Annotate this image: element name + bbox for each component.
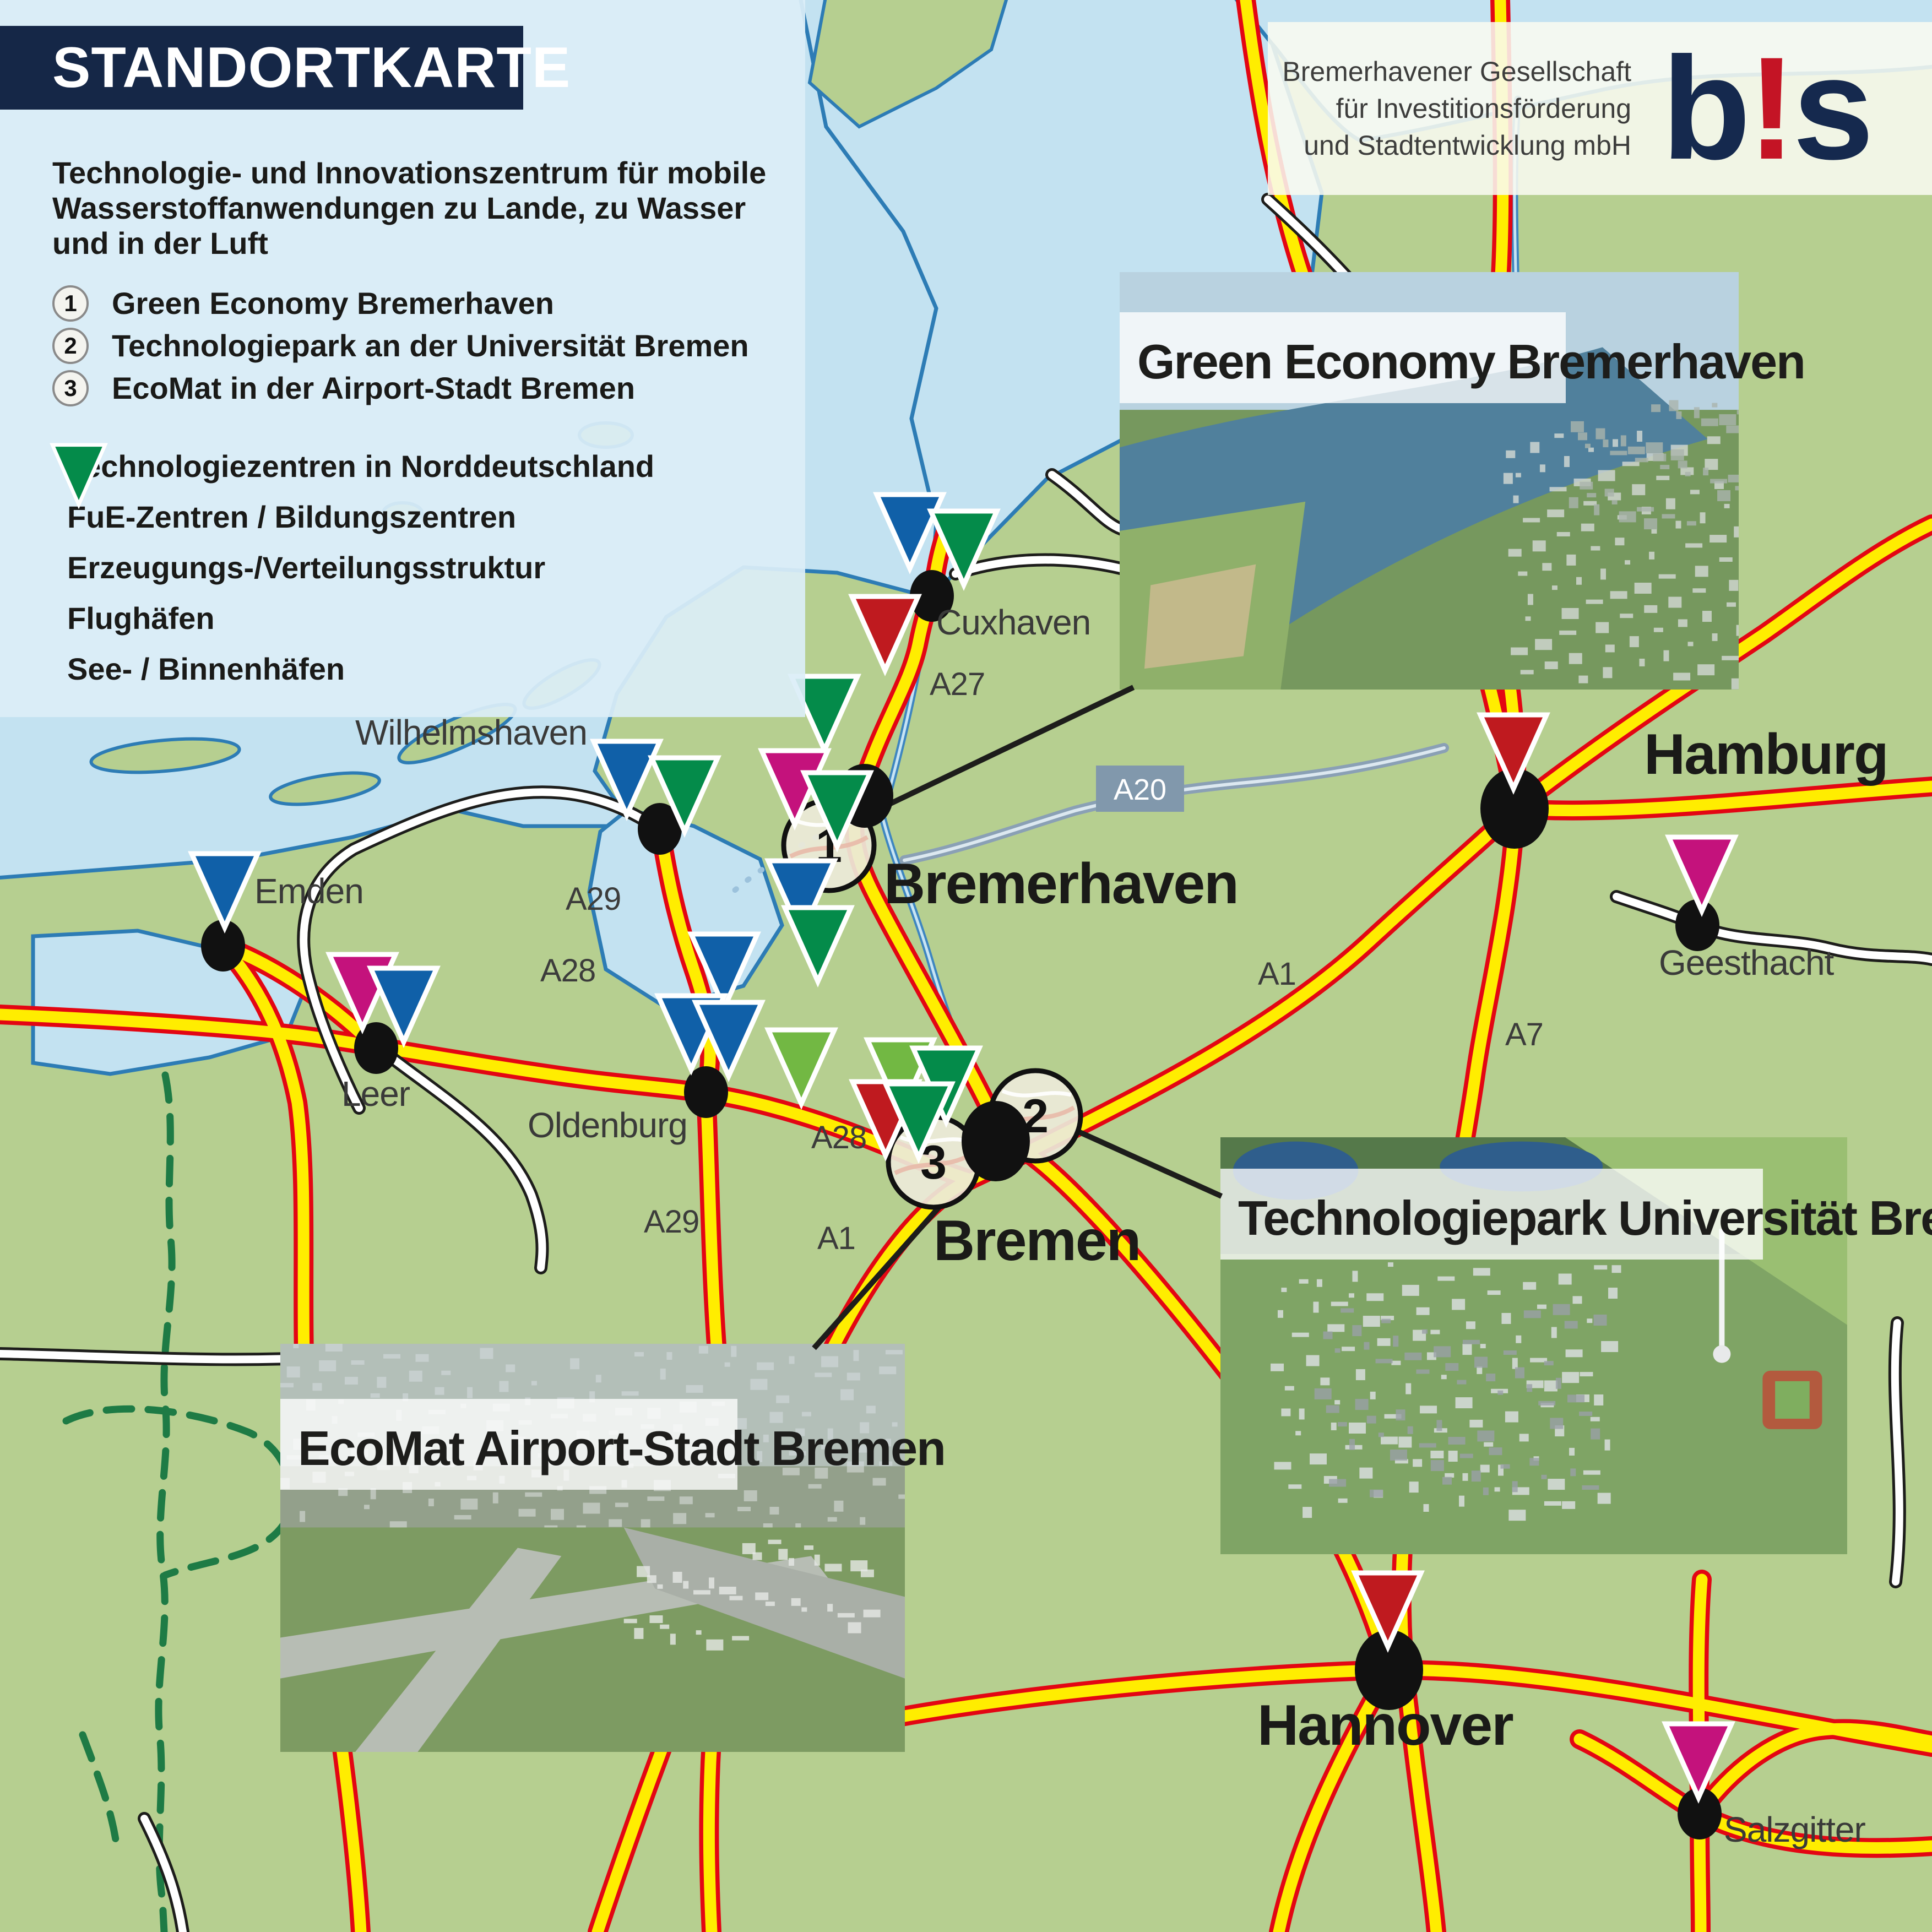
photo-inset-p1: Green Economy Bremerhaven xyxy=(1120,272,1805,690)
legend-key-label: FuE-Zentren / Bildungszentren xyxy=(48,499,516,535)
company-name-line: für Investitionsförderung xyxy=(1268,90,1631,127)
legend-panel: STANDORTKARTE Technologie- und Innovatio… xyxy=(0,0,805,717)
photo-inset-p2: Technologiepark Universität Bremen xyxy=(1220,1137,1932,1554)
numbered-site-item: 1Green Economy Bremerhaven xyxy=(52,282,749,324)
road-label-text: A29 xyxy=(644,1204,699,1240)
city-label-emden: Emden xyxy=(254,871,363,911)
legend-key-item: See- / Binnenhäfen xyxy=(48,643,654,694)
company-name-line: Bremerhavener Gesellschaft xyxy=(1268,53,1631,90)
road-label-text: A29 xyxy=(566,881,621,917)
photo-label: Green Economy Bremerhaven xyxy=(1137,334,1805,389)
site-name-label: Technologiepark an der Universität Breme… xyxy=(89,328,749,363)
city-label-wilhelmshaven: Wilhelmshaven xyxy=(355,713,587,752)
photo-label: EcoMat Airport-Stadt Bremen xyxy=(298,1421,945,1475)
legend-key-item: FuE-Zentren / Bildungszentren xyxy=(48,491,654,542)
page-title: STANDORTKARTE xyxy=(0,35,571,101)
city-label-geesthacht: Geesthacht xyxy=(1659,943,1835,983)
city-label-cuxhaven: Cuxhaven xyxy=(936,603,1090,642)
legend-key-item: Technologiezentren in Norddeutschland xyxy=(48,441,654,491)
city-label-oldenburg: Oldenburg xyxy=(528,1105,687,1145)
legend-key-label: Technologiezentren in Norddeutschland xyxy=(48,448,654,484)
photo-inset-p3: EcoMat Airport-Stadt Bremen xyxy=(280,1344,945,1752)
hafen-marker[interactable] xyxy=(785,908,851,981)
road-label-text: A27 xyxy=(930,666,985,702)
numbered-site-list: 1Green Economy Bremerhaven2Technologiepa… xyxy=(52,282,749,409)
road-label-text: A28 xyxy=(540,953,595,989)
photo-connector-line xyxy=(1075,1130,1222,1196)
site-number-badge: 3 xyxy=(52,370,89,406)
description-line: Technologie- und Innovationszentrum für … xyxy=(52,155,768,191)
numbered-site-item: 2Technologiepark an der Universität Brem… xyxy=(52,324,749,367)
site-name-label: EcoMat in der Airport-Stadt Bremen xyxy=(89,370,635,406)
photo-label: Technologiepark Universität Bremen xyxy=(1238,1191,1932,1245)
bis-logo: b!s xyxy=(1631,40,1871,177)
bis-logo-b: b xyxy=(1662,27,1748,190)
erz-marker[interactable] xyxy=(768,1030,834,1104)
legend-key-label: See- / Binnenhäfen xyxy=(48,651,345,687)
site-name-label: Green Economy Bremerhaven xyxy=(89,285,554,321)
hafen-marker-icon xyxy=(48,441,109,509)
legend-key-item: Flughäfen xyxy=(48,593,654,643)
city-label-bremerhaven: Bremerhaven xyxy=(884,852,1238,916)
road-label-boxed: A20 xyxy=(1096,766,1184,812)
road-label-text: A20 xyxy=(1114,773,1166,806)
site-number-badge: 2 xyxy=(52,328,89,364)
site-number-badge: 1 xyxy=(52,285,89,322)
legend-key-item: Erzeugungs-/Verteilungsstruktur xyxy=(48,542,654,593)
bis-logo-s: s xyxy=(1793,27,1870,190)
city-label-hannover: Hannover xyxy=(1257,1694,1513,1757)
standortkarte-page: Green Economy BremerhavenTechnologiepark… xyxy=(0,0,1932,1932)
city-label-hamburg: Hamburg xyxy=(1644,723,1887,786)
city-label-salzgitter: Salzgitter xyxy=(1724,1810,1865,1849)
road-label-text: A7 xyxy=(1505,1017,1543,1052)
title-bar: STANDORTKARTE xyxy=(0,26,523,110)
bis-logo-exclamation: ! xyxy=(1748,27,1793,190)
description-line: und in der Luft xyxy=(52,226,768,261)
tech-marker[interactable] xyxy=(1669,837,1735,911)
company-name: Bremerhavener Gesellschaft für Investiti… xyxy=(1268,53,1631,164)
legend-key-label: Erzeugungs-/Verteilungsstruktur xyxy=(48,550,545,585)
state-border xyxy=(66,1075,290,1932)
numbered-site-item: 3EcoMat in der Airport-Stadt Bremen xyxy=(52,367,749,409)
fue-marker[interactable] xyxy=(192,854,258,927)
flug-marker[interactable] xyxy=(1480,715,1546,789)
road-label-text: A1 xyxy=(1258,956,1296,992)
marker-key-list: Technologiezentren in NorddeutschlandFuE… xyxy=(48,441,654,694)
legend-key-label: Flughäfen xyxy=(48,600,215,636)
company-logo-box: Bremerhavener Gesellschaft für Investiti… xyxy=(1268,22,1932,195)
road-label-text: A1 xyxy=(817,1220,855,1256)
city-label-leer: Leer xyxy=(341,1074,410,1114)
description-line: Wasserstoffanwendungen zu Lande, zu Wass… xyxy=(52,191,768,226)
company-name-line: und Stadtentwicklung mbH xyxy=(1268,127,1631,164)
road-label-text: A28 xyxy=(811,1120,866,1155)
map-description: Technologie- und Innovationszentrum für … xyxy=(52,155,768,261)
city-dot-bremen[interactable] xyxy=(962,1101,1030,1181)
city-label-bremen: Bremen xyxy=(934,1209,1140,1273)
